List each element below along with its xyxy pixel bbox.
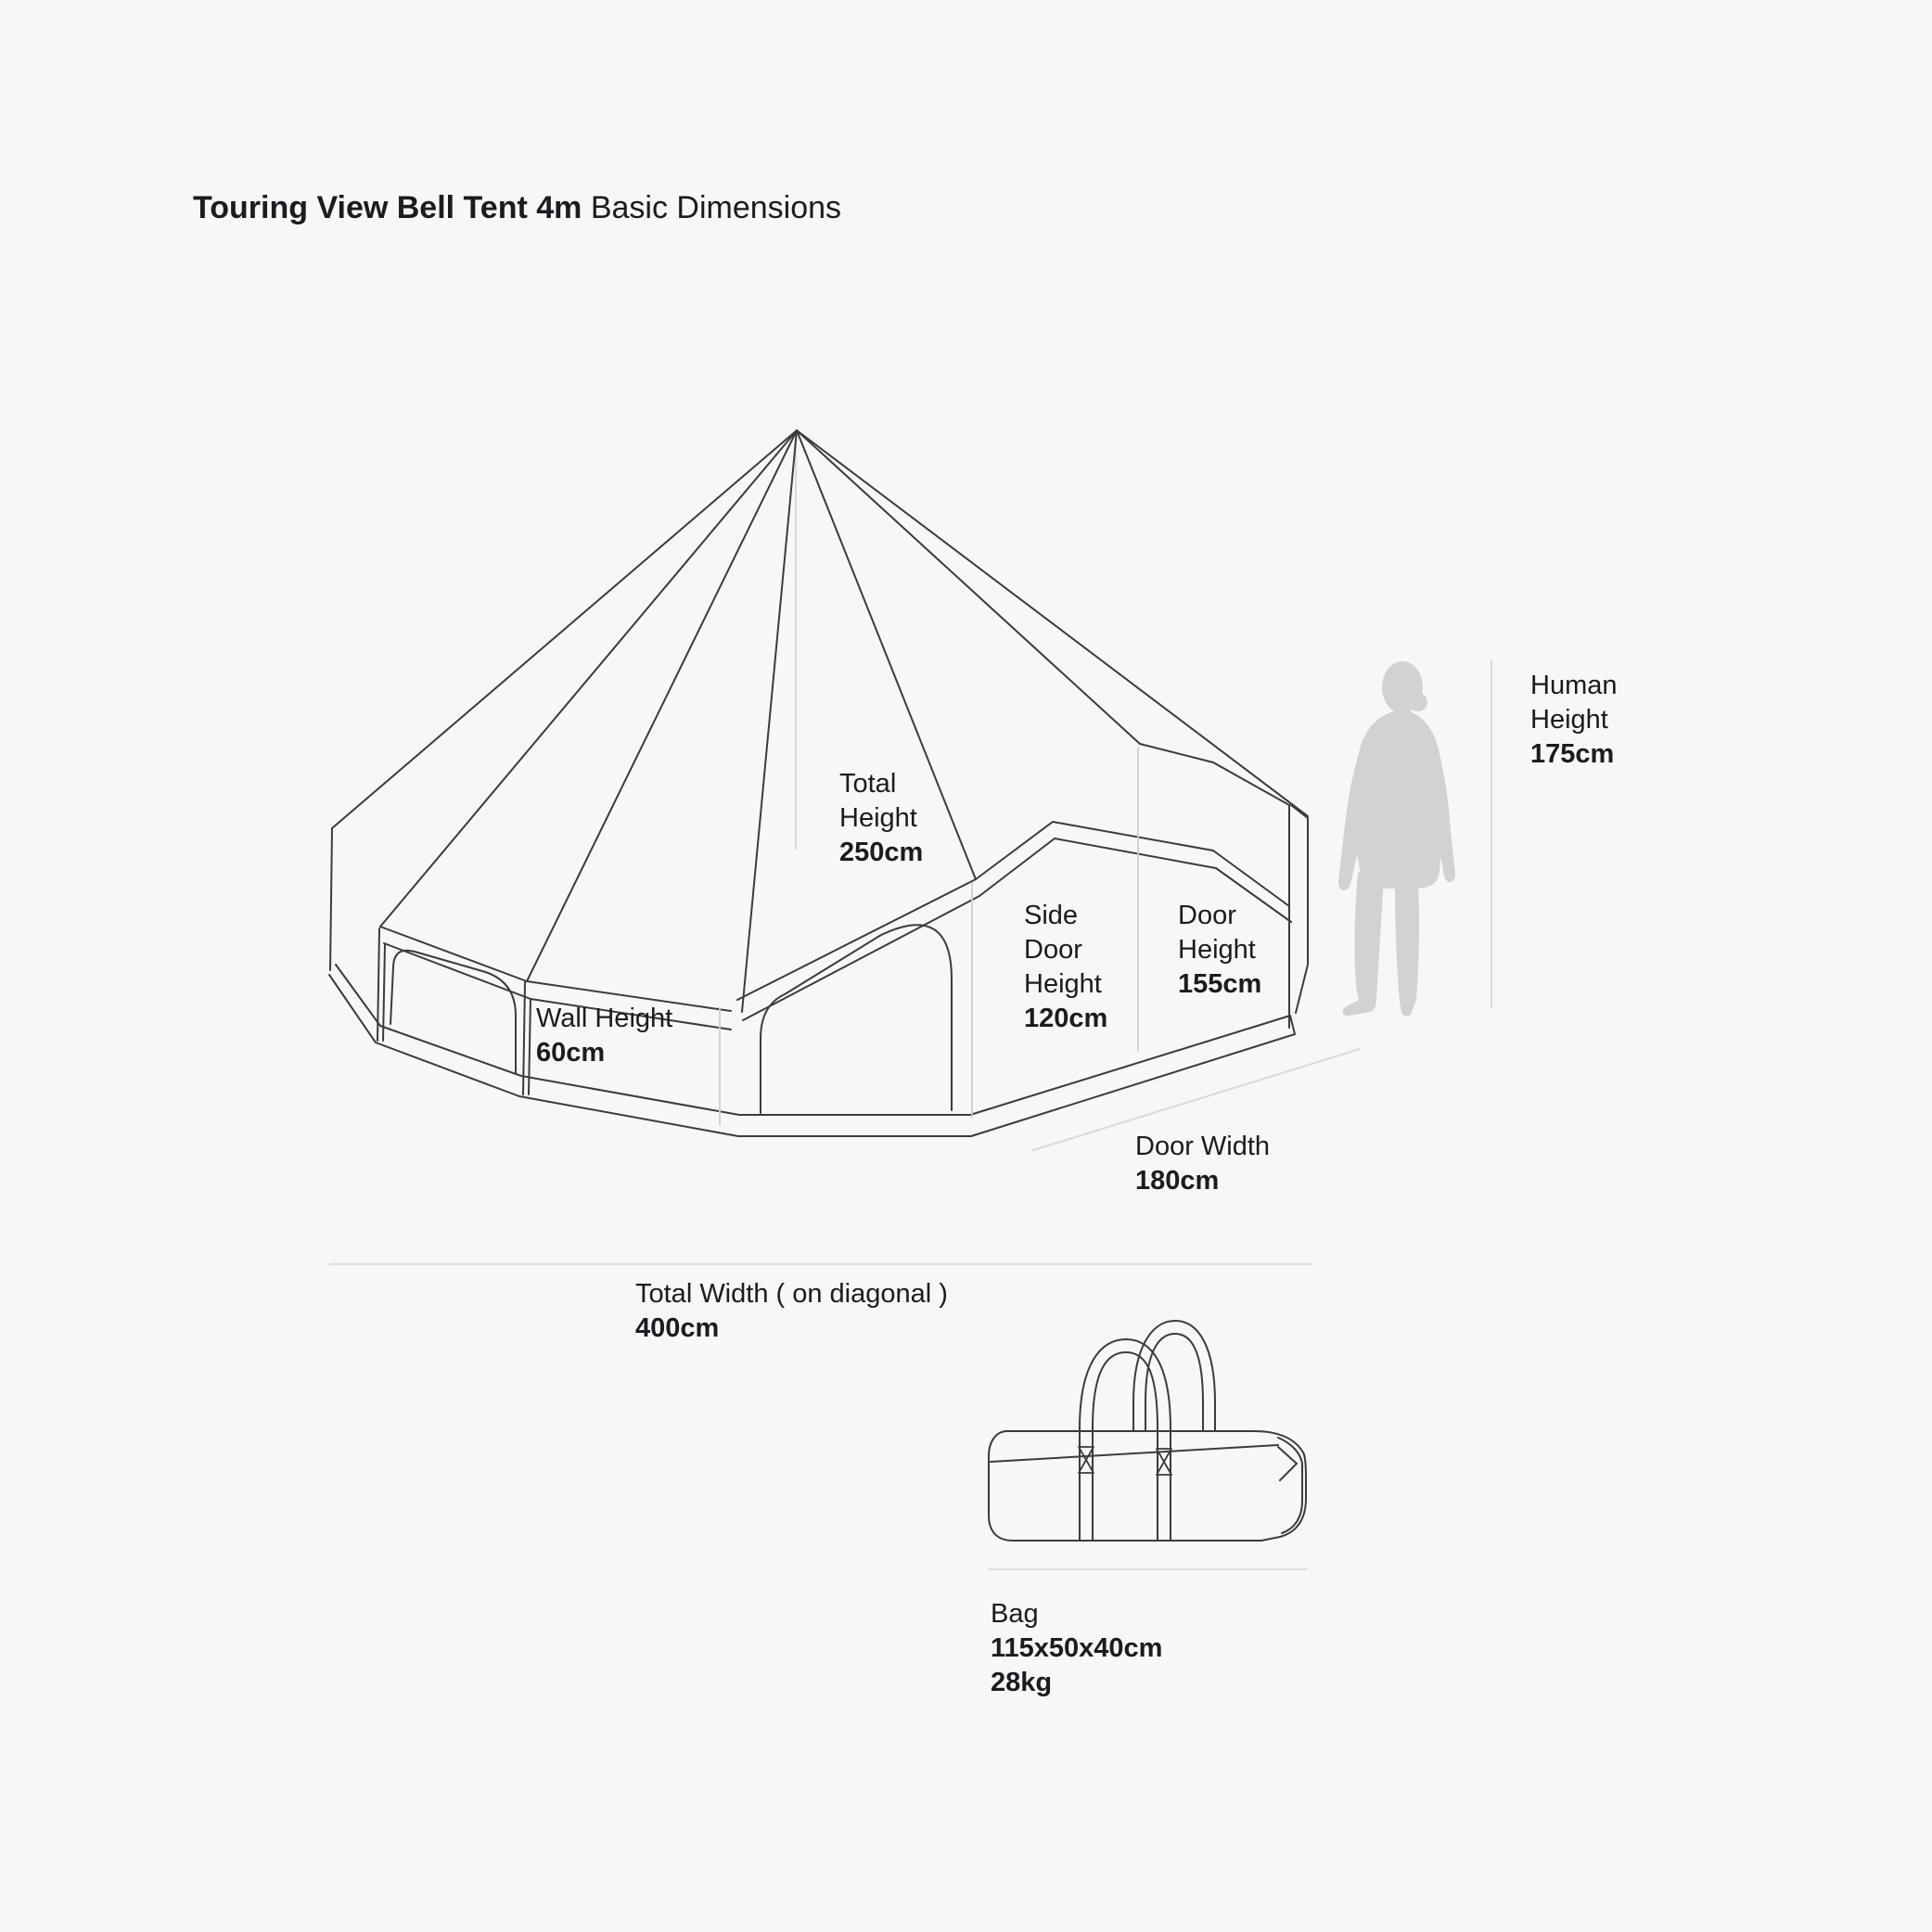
human-left-leg [1343,872,1384,1016]
door-height-text: Door [1178,899,1261,933]
door-width-label: Door Width 180cm [1135,1130,1270,1198]
total-height-value: 250cm [839,836,923,870]
total-height-text: Total [839,767,923,801]
human-silhouette [1338,661,1455,1017]
page-title: Touring View Bell Tent 4m Basic Dimensio… [193,187,841,228]
side-door-height-text: Door [1024,933,1107,967]
door-height-text: Height [1178,933,1261,967]
diagram-canvas: Touring View Bell Tent 4m Basic Dimensio… [0,0,1932,1932]
product-name: Touring View Bell Tent 4m [193,190,582,225]
wall-height-value: 60cm [536,1036,672,1070]
human-height-text: Human [1530,669,1618,703]
human-height-text: Height [1530,703,1618,737]
door-height-value: 155cm [1178,967,1261,1002]
wall-height-label: Wall Height 60cm [536,1002,672,1070]
door-width-value: 180cm [1135,1164,1270,1198]
title-suffix: Basic Dimensions [591,190,841,225]
tent-front-door-arch [761,925,952,1113]
bag-text: Bag [991,1597,1162,1631]
tent-eave-band [380,822,1291,1030]
door-width-text: Door Width [1135,1130,1270,1164]
wall-height-text: Wall Height [536,1002,672,1036]
side-door-height-label: Side Door Height 120cm [1024,899,1107,1036]
human-torso [1353,710,1445,889]
tent-ground-band [329,965,1295,1136]
bag-label: Bag 115x50x40cm 28kg [991,1597,1162,1700]
total-height-label: Total Height 250cm [839,767,923,870]
side-door-height-text: Height [1024,967,1107,1002]
bag-illustration [989,1321,1306,1541]
bag-rear-handle [1133,1321,1215,1443]
bag-weight-value: 28kg [991,1666,1162,1700]
tent-roof-seams [332,430,1308,1012]
bag-body [989,1431,1306,1541]
side-door-height-value: 120cm [1024,1002,1107,1036]
human-height-label: Human Height 175cm [1530,669,1618,772]
total-width-label: Total Width ( on diagonal ) 400cm [635,1277,948,1346]
reference-lines [330,436,1491,1569]
tent-illustration [329,430,1308,1136]
diagram-linework [0,0,1932,1932]
human-right-leg [1395,881,1419,1017]
total-width-text: Total Width ( on diagonal ) [635,1277,948,1311]
door-height-label: Door Height 155cm [1178,899,1261,1002]
side-door-height-text: Side [1024,899,1107,933]
bag-size-value: 115x50x40cm [991,1631,1162,1666]
total-height-text: Height [839,801,923,836]
human-height-value: 175cm [1530,737,1618,772]
total-width-value: 400cm [635,1311,948,1346]
